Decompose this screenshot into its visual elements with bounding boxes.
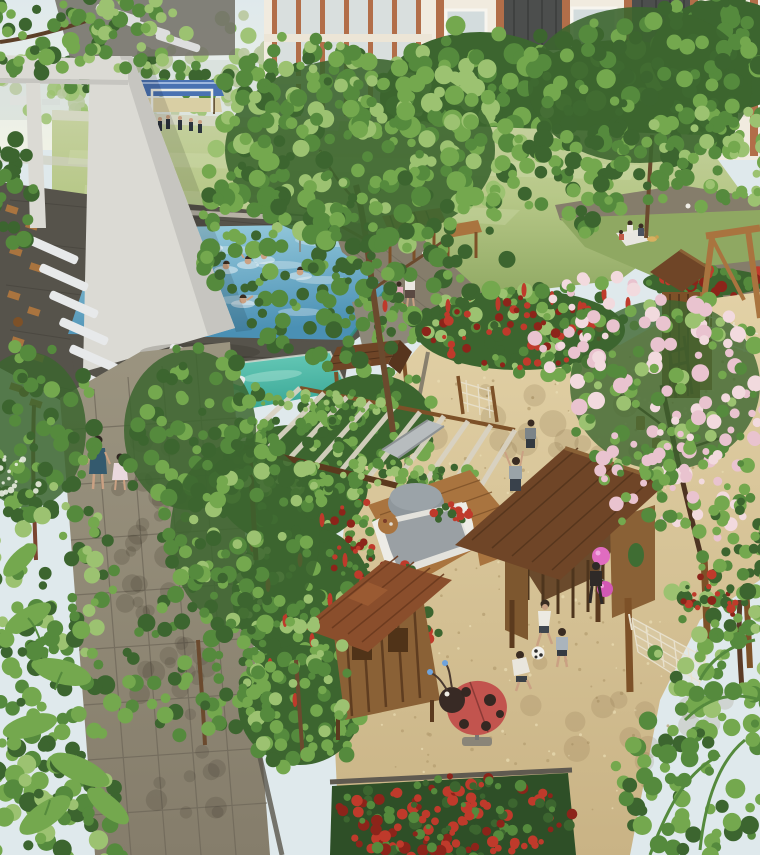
courtyard-rendering: Residential courtyard aerial rendering A… (0, 0, 760, 855)
football (532, 647, 545, 660)
courtyard-scene: Aerial rendering of a lush residential c… (0, 0, 760, 855)
side-table (378, 514, 398, 534)
distant-building (42, 99, 60, 105)
distant-walker (686, 204, 691, 209)
porthole-window (628, 543, 644, 567)
